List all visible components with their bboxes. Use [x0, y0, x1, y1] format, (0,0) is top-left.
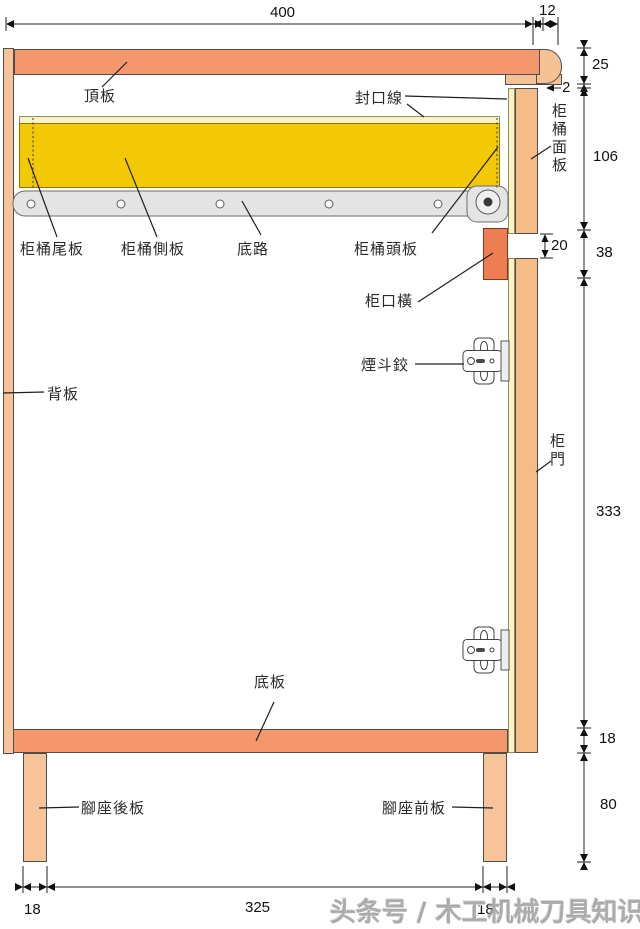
door-edge-strip: [508, 258, 515, 753]
rail-screw-holes: [27, 200, 442, 208]
opening-rail-block: [483, 228, 508, 280]
label-drawer-side-board: 柜桶側板: [121, 238, 185, 259]
bottom-board: [13, 729, 508, 753]
dim-bottom-left-18: 18: [24, 901, 41, 918]
dim-door-333: 333: [596, 503, 621, 520]
dim-reveal-20: 20: [551, 237, 568, 254]
label-seal-line: 封口線: [355, 87, 403, 108]
label-drawer-head-board: 柜桶頭板: [354, 238, 418, 259]
dim-bottom-325: 325: [245, 899, 270, 916]
top-board: [14, 49, 540, 75]
label-door: 柜門: [549, 433, 565, 469]
door-panel: [515, 258, 538, 753]
dim-drawer-front-106: 106: [593, 148, 618, 165]
label-front-leg-board: 腳座前板: [382, 797, 446, 818]
dim-leg-80: 80: [600, 796, 617, 813]
cabinet-section-diagram: 400 12 25 2 106 20 38 333 18 80 18 325 1…: [0, 0, 640, 929]
label-bottom-board: 底板: [254, 671, 286, 692]
drawer-face-edge-strip: [508, 88, 515, 234]
front-leg-board: [483, 753, 507, 862]
cup-hinge-top: [463, 338, 509, 384]
label-back-board: 背板: [47, 383, 79, 404]
dim-top-overhang: 12: [539, 2, 556, 19]
label-bottom-rail: 底路: [237, 238, 269, 259]
drawer-face-panel: [515, 88, 538, 234]
rear-leg-board: [23, 753, 47, 862]
cup-hinge-bottom: [463, 627, 509, 673]
drawer-side-board: [19, 123, 500, 188]
watermark-text: 头条号 / 木工机械刀具知识: [330, 892, 640, 929]
label-hinge: 煙斗鉸: [361, 354, 409, 375]
dim-top-width: 400: [270, 4, 295, 21]
slide-rail: [13, 186, 508, 222]
label-rear-leg-board: 腳座後板: [81, 797, 145, 818]
back-board: [3, 48, 14, 754]
rail-roller: [476, 190, 500, 214]
label-top-board: 頂板: [84, 85, 116, 106]
dim-gap-2: 2: [562, 79, 570, 96]
label-opening-rail: 柜口橫: [365, 290, 413, 311]
label-drawer-face-panel: 柜桶面板: [551, 103, 567, 175]
dim-opening-rail-38: 38: [596, 244, 613, 261]
dim-bottom-18: 18: [599, 730, 616, 747]
label-drawer-tail-board: 柜桶尾板: [20, 238, 84, 259]
dim-top-thickness: 25: [592, 56, 609, 73]
